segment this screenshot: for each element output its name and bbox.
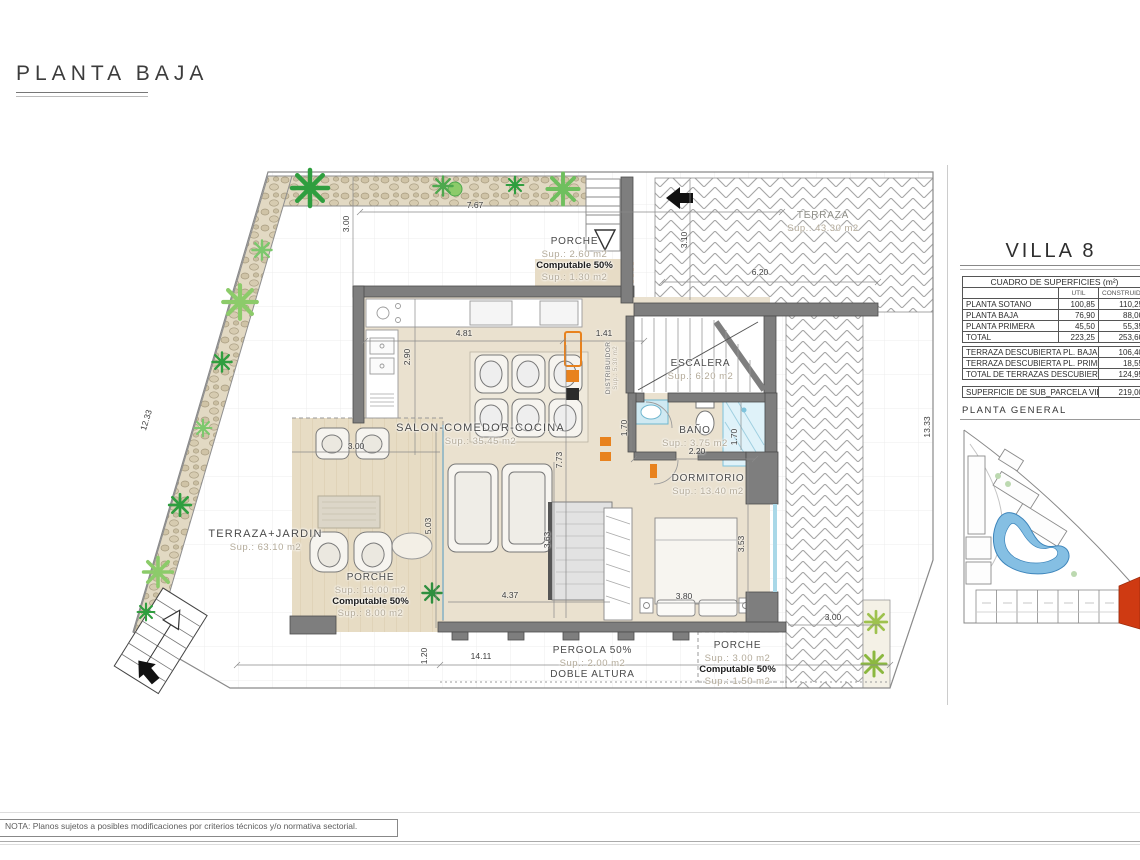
dimension-label: 3.00: [341, 216, 351, 233]
room-label-pergola: PERGOLA 50% Sup.: 2.00 m2 DOBLE ALTURA: [525, 645, 660, 682]
room-label-distribuidor: DISTRIBUIDOR Sup.: 5.30 m2: [605, 333, 621, 403]
tv-chaise: [548, 502, 612, 600]
dimension-label: 6.20: [752, 267, 769, 277]
terraces-table: TERRAZA DESCUBIERTA PL. BAJA 106,40 TERR…: [962, 346, 1140, 380]
dimension-label: 3.63: [542, 532, 552, 549]
dimension-label: 13.33: [922, 416, 932, 437]
room-label-dormitorio: DORMITORIO Sup.: 13.40 m2: [648, 473, 768, 497]
bedroom-window: [773, 504, 777, 592]
table-row: PLANTA PRIMERA 45,50 55,35: [963, 321, 1140, 332]
dimension-label: 4.37: [502, 590, 519, 600]
dimension-label: 7.67: [467, 200, 484, 210]
room-label-terraza-top: TERRAZA Sup.: 43.30 m2: [768, 210, 878, 234]
dimension-label: 14.11: [471, 651, 492, 661]
site-villa8-highlight: [1119, 577, 1140, 629]
dimension-label: 1.70: [619, 420, 629, 437]
surfaces-table-title: CUADRO DE SUPERFICIES (m²): [963, 277, 1140, 288]
page-title: PLANTA BAJA: [16, 62, 208, 86]
col-util: UTIL: [1059, 288, 1099, 299]
parcel-table: SUPERFICIE DE SUB_PARCELA VILLA 8 219,00: [962, 386, 1140, 398]
table-row: SUPERFICIE DE SUB_PARCELA VILLA 8 219,00: [963, 387, 1140, 398]
title-underline: [16, 92, 148, 97]
dimension-label: 3.53: [736, 536, 746, 553]
room-label-porche-main: PORCHE Sup.: 16.00 m2 Computable 50% Sup…: [308, 572, 433, 620]
villa-title-underline: [960, 265, 1140, 270]
dimension-label: 1.41: [596, 328, 613, 338]
surfaces-table: CUADRO DE SUPERFICIES (m²) UTIL CONSTRUI…: [962, 276, 1140, 343]
dimension-label: 3.10: [679, 232, 689, 249]
titleblock-separator: [947, 165, 948, 705]
sheet-rule-bottom-1: [0, 841, 1140, 842]
room-label-terraza-jardin: TERRAZA+JARDIN Sup.: 63.10 m2: [158, 528, 373, 554]
table-row: TOTAL 223,25 253,60: [963, 332, 1140, 343]
table-row: TOTAL DE TERRAZAS DESCUBIERTAS 124,95: [963, 369, 1140, 380]
sheet-rule-top: [0, 812, 1140, 813]
dimension-label: 2.20: [689, 446, 706, 456]
dimension-label: 3.00: [825, 612, 842, 622]
planta-general-underline: [960, 419, 1140, 420]
dimension-label: 4.81: [456, 328, 473, 338]
site-villa-row: [976, 590, 1119, 623]
room-label-escalera: ESCALERA Sup.: 6.20 m2: [648, 358, 753, 382]
table-row: PLANTA SOTANO 100,85 110,25: [963, 299, 1140, 310]
table-row: TERRAZA DESCUBIERTA PL. BAJA 106,40: [963, 347, 1140, 358]
room-label-porche-top: PORCHE Sup.: 2.60 m2 Computable 50% Sup.…: [527, 236, 622, 284]
dimension-label: 7.73: [554, 452, 564, 469]
room-label-porche-br: PORCHE Sup.: 3.00 m2 Computable 50% Sup.…: [685, 640, 790, 688]
note-box: NOTA: Planos sujetos a posibles modifica…: [0, 819, 398, 837]
site-plan: [956, 424, 1140, 646]
planta-general-label: PLANTA GENERAL: [962, 405, 1067, 416]
dimension-label: 3.00: [348, 441, 365, 451]
dimension-label: 1.20: [419, 648, 429, 665]
dimension-label: 1.70: [729, 429, 739, 446]
table-row: PLANTA BAJA 76,90 88,00: [963, 310, 1140, 321]
plan-sheet: { "header": { "title": "PLANTA BAJA" }, …: [0, 0, 1140, 860]
villa-title: VILLA 8: [962, 240, 1140, 263]
dimension-label: 2.90: [402, 349, 412, 366]
dimension-label: 3.80: [676, 591, 693, 601]
sheet-rule-bottom-2: [0, 844, 1140, 845]
dimension-label: 5.03: [423, 518, 433, 535]
room-label-salon: SALON-COMEDOR-COCINA Sup.: 35.45 m2: [388, 422, 573, 448]
table-row: TERRAZA DESCUBIERTA PL. PRIMERA 18,55: [963, 358, 1140, 369]
col-construida: CONSTRUIDA: [1099, 288, 1140, 299]
